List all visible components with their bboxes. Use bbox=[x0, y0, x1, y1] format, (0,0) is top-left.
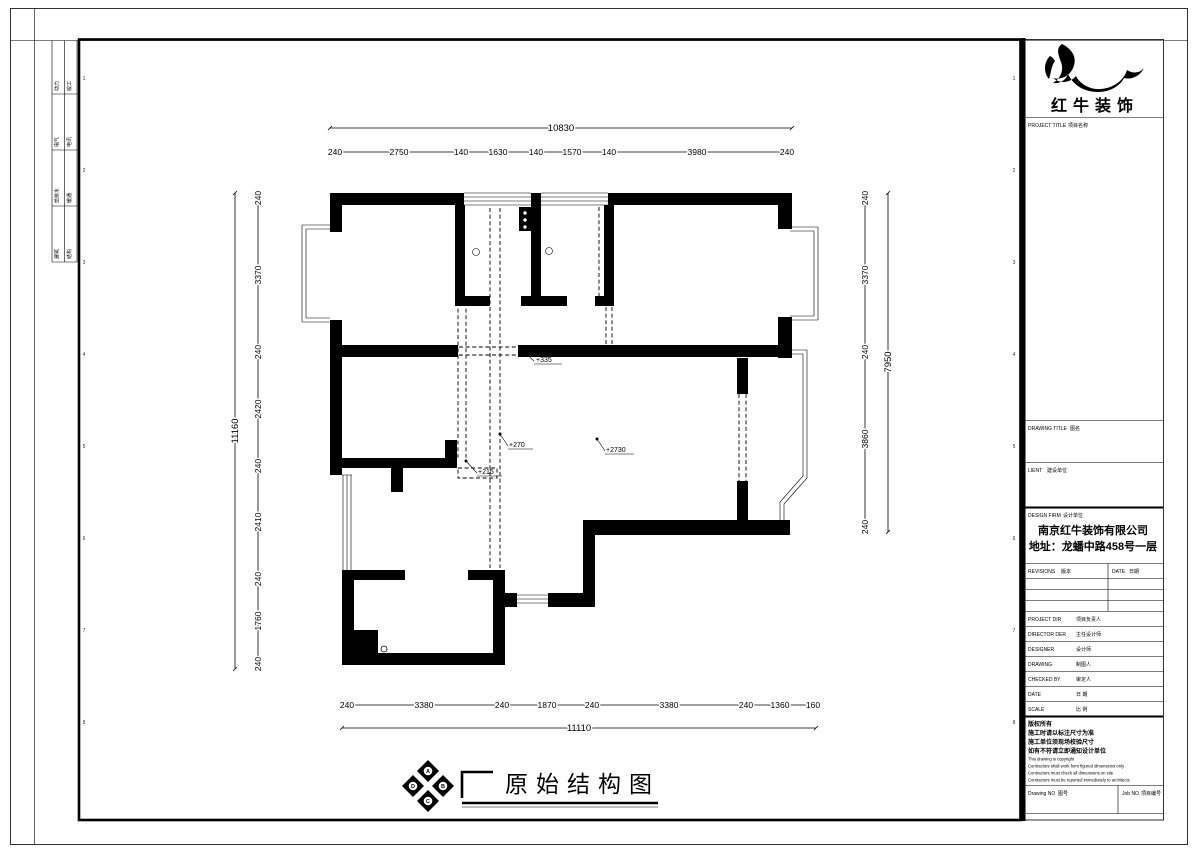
zone-number: 1 bbox=[1013, 76, 1016, 82]
drawing-title-text: 原始结构图 bbox=[505, 771, 660, 797]
zone-number: 6 bbox=[1013, 536, 1016, 542]
shaft-vent-dots bbox=[523, 211, 526, 228]
dim: 3380 bbox=[660, 700, 679, 710]
stamp-label: 动力 bbox=[54, 81, 61, 91]
revisions-label: REVISIONS bbox=[1028, 569, 1056, 575]
dim-top-total: 10830 bbox=[548, 123, 574, 134]
row-label-cn: 设计师 bbox=[1076, 646, 1091, 653]
dim: 3980 bbox=[688, 147, 707, 157]
dim: 3380 bbox=[415, 700, 434, 710]
pipe-symbol bbox=[381, 646, 387, 652]
dim: 140 bbox=[602, 147, 616, 157]
bay-window-right bbox=[790, 227, 818, 320]
row-label-cn: 比 例 bbox=[1076, 706, 1087, 713]
compass-icon: A B C D bbox=[402, 760, 454, 812]
plan-walls bbox=[330, 193, 792, 665]
dimensions: 10830 240 2750 140 1630 140 1570 140 398… bbox=[230, 123, 894, 734]
compass-letter: A bbox=[426, 769, 430, 775]
firm-name: 南京红牛装饰有限公司 bbox=[1038, 523, 1148, 537]
design-firm-label: DESIGN FIRM bbox=[1028, 513, 1061, 519]
brand-name: 红牛装饰 bbox=[1051, 96, 1139, 115]
stamp-label: 电讯 bbox=[66, 137, 73, 147]
zone-number: 5 bbox=[83, 444, 86, 450]
footer-title: A B C D 原始结构图 bbox=[402, 760, 660, 812]
row-label-cn: 项目负责人 bbox=[1076, 616, 1101, 623]
client-label-cn: 建设单位 bbox=[1047, 467, 1067, 474]
revisions-label-cn: 版本 bbox=[1061, 568, 1071, 575]
zone-number: 4 bbox=[83, 352, 86, 358]
drain-symbol bbox=[546, 248, 553, 255]
plan-symbols bbox=[381, 248, 553, 653]
compass-letter: B bbox=[441, 784, 445, 790]
dim: 2750 bbox=[390, 147, 409, 157]
copyright-line: 版权所有 bbox=[1027, 720, 1052, 728]
copyright-line: 如有不符请立即通知设计单位 bbox=[1028, 747, 1106, 755]
dim: 240 bbox=[328, 147, 342, 157]
row-label: DRAWING bbox=[1028, 662, 1052, 668]
stamp-label: 竣工 bbox=[66, 81, 73, 91]
drawing-no-label-cn: 图号 bbox=[1058, 791, 1068, 797]
dim: 140 bbox=[529, 147, 543, 157]
row-label: DIRECTOR DER bbox=[1028, 632, 1066, 638]
stamp-grid bbox=[52, 41, 77, 263]
compass-letter: D bbox=[411, 784, 415, 790]
row-label: CHECKED BY bbox=[1028, 677, 1061, 683]
copyright-line-en: Contractors must check all dimensions on… bbox=[1028, 771, 1114, 776]
project-title-label-cn: 项目名称 bbox=[1068, 122, 1088, 129]
zone-number: 3 bbox=[83, 260, 86, 266]
dim: 240 bbox=[253, 572, 263, 586]
drawing-title-label-cn: 图名 bbox=[1070, 425, 1080, 432]
dim: 240 bbox=[253, 191, 263, 205]
dim: 240 bbox=[253, 345, 263, 359]
design-firm-label-cn: 设计单位 bbox=[1063, 512, 1083, 519]
dim: 240 bbox=[739, 700, 753, 710]
dim-bottom-total: 11110 bbox=[567, 723, 591, 734]
stamp-label: 结构 bbox=[66, 249, 73, 259]
window-left-strip bbox=[342, 475, 352, 572]
zone-number: 4 bbox=[1013, 352, 1016, 358]
row-label-cn: 制图人 bbox=[1076, 661, 1091, 668]
dim-right-total: 7950 bbox=[883, 351, 894, 372]
zone-number: 1 bbox=[83, 76, 86, 82]
dim: 3370 bbox=[860, 265, 870, 284]
level-label: +270 bbox=[509, 442, 525, 449]
bay-window-left bbox=[302, 225, 330, 322]
zone-number: 5 bbox=[1013, 444, 1016, 450]
row-label: DESIGNER bbox=[1028, 647, 1055, 653]
titleblock-heavy-lines bbox=[1024, 508, 1163, 717]
dim: 1570 bbox=[563, 147, 582, 157]
zone-number: 2 bbox=[83, 168, 86, 174]
balcony-right bbox=[780, 350, 807, 522]
titleblock-vlines bbox=[1108, 564, 1118, 814]
sheet-frame bbox=[11, 9, 1188, 845]
dim: 1360 bbox=[771, 700, 790, 710]
row-label: DATE bbox=[1028, 692, 1042, 698]
copyright-line: 施工单位须现场校验尺寸 bbox=[1028, 738, 1094, 746]
dim: 240 bbox=[860, 191, 870, 205]
job-no-label-cn: 项目编号 bbox=[1141, 790, 1161, 797]
zone-number: 7 bbox=[83, 628, 86, 634]
copyright-line-en: Contractors shall work form figured dime… bbox=[1028, 764, 1125, 769]
floor-plan: +335 +270 +215 +2730 10830 240 2750 140 … bbox=[230, 123, 894, 734]
title-bracket bbox=[462, 772, 493, 798]
dim: 1760 bbox=[253, 611, 263, 630]
level-label: +335 bbox=[536, 357, 552, 364]
row-label-cn: 日 期 bbox=[1076, 692, 1087, 698]
dim: 240 bbox=[860, 520, 870, 534]
redniu-logo-icon bbox=[1045, 44, 1144, 92]
entry-window bbox=[517, 595, 548, 603]
dim: 2410 bbox=[253, 512, 263, 531]
window-top-1 bbox=[464, 193, 531, 205]
project-title-label: PROJECT TITLE bbox=[1028, 123, 1067, 129]
copyright-line-en: Contractors must be reported immediately… bbox=[1028, 778, 1130, 783]
dim: 140 bbox=[454, 147, 468, 157]
outer-border bbox=[11, 9, 1188, 845]
dim: 240 bbox=[585, 700, 599, 710]
discipline-stamps: 动力 竣工 电气 电讯 给排水 暖通 建筑 结构 bbox=[52, 41, 77, 263]
zone-number: 8 bbox=[83, 720, 86, 726]
window-top-2 bbox=[541, 193, 608, 205]
zone-numbers: 1 2 3 4 5 6 7 8 1 2 3 4 5 6 7 8 bbox=[83, 76, 1016, 726]
dim: 1630 bbox=[489, 147, 508, 157]
row-label: SCALE bbox=[1028, 707, 1045, 713]
row-label-cn: 审定人 bbox=[1076, 676, 1091, 683]
dim: 1870 bbox=[538, 700, 557, 710]
level-label: +2730 bbox=[606, 447, 626, 454]
dim: 160 bbox=[806, 700, 820, 710]
dim: 240 bbox=[495, 700, 509, 710]
stamp-label: 暖通 bbox=[66, 193, 73, 203]
dim: 3860 bbox=[860, 429, 870, 448]
dim: 3370 bbox=[253, 265, 263, 284]
row-label: PROJECT DIR bbox=[1028, 617, 1062, 623]
stamp-label: 建筑 bbox=[54, 249, 61, 259]
row-label-cn: 主任设计师 bbox=[1076, 631, 1101, 638]
drawing-title-label: DRAWING TITLE bbox=[1028, 426, 1068, 432]
date-col-label: DATE bbox=[1112, 569, 1126, 575]
dim: 240 bbox=[780, 147, 794, 157]
firm-address: 地址：龙蟠中路458号一层 bbox=[1029, 539, 1157, 553]
dim: 240 bbox=[253, 657, 263, 671]
stamp-label: 电气 bbox=[54, 137, 61, 147]
zone-number: 8 bbox=[1013, 720, 1016, 726]
zone-number: 6 bbox=[83, 536, 86, 542]
dim-left-total: 11160 bbox=[230, 418, 241, 443]
sheet-svg: 动力 竣工 电气 电讯 给排水 暖通 建筑 结构 1 2 3 4 5 6 7 8… bbox=[0, 0, 1200, 852]
dim: 240 bbox=[253, 459, 263, 473]
dim: 240 bbox=[860, 345, 870, 359]
drain-symbol bbox=[473, 249, 480, 256]
titleblock-lines bbox=[1024, 118, 1163, 814]
drawing-no-label: Drawing NO bbox=[1028, 791, 1055, 797]
compass-letter: C bbox=[426, 799, 430, 805]
copyright-line: 施工时请以标注尺寸为准 bbox=[1028, 729, 1094, 737]
job-no-label: Job NO bbox=[1122, 791, 1139, 797]
drawing-sheet: 动力 竣工 电气 电讯 给排水 暖通 建筑 结构 1 2 3 4 5 6 7 8… bbox=[0, 0, 1200, 852]
zone-number: 2 bbox=[1013, 168, 1016, 174]
plan-dashed-lines bbox=[458, 207, 746, 568]
title-block: 红牛装饰 PROJECT TITLE 项目名称 DRAWING TITLE 图名… bbox=[1024, 44, 1163, 814]
date-col-label-cn: 日期 bbox=[1129, 569, 1139, 575]
dim: 240 bbox=[340, 700, 354, 710]
zone-number: 3 bbox=[1013, 260, 1016, 266]
client-label: LIENT bbox=[1028, 468, 1042, 474]
plan-windows bbox=[302, 193, 818, 603]
level-label: +215 bbox=[478, 469, 494, 476]
dim: 2420 bbox=[253, 399, 263, 418]
zone-number: 7 bbox=[1013, 628, 1016, 634]
copyright-line-en: This drawing is copyright bbox=[1028, 757, 1075, 762]
stamp-label: 给排水 bbox=[54, 188, 61, 203]
margin-lines bbox=[11, 9, 1188, 845]
